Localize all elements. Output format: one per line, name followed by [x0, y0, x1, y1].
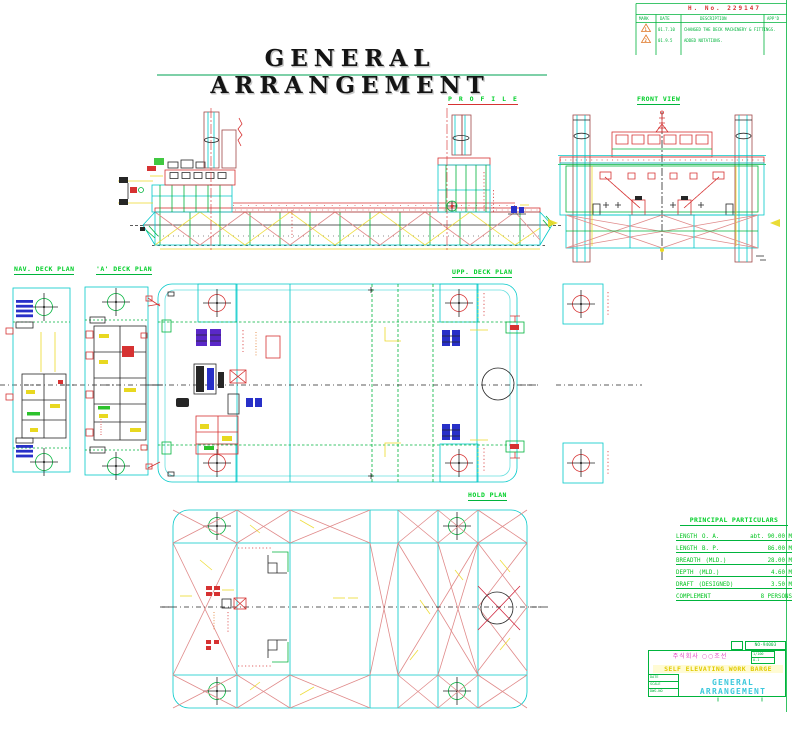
particular-value: 28.00 M — [768, 558, 792, 564]
hold-plan-label: HOLD PLAN — [468, 491, 507, 501]
particular-label: DEPTH — [676, 570, 693, 576]
rev-row-description: ADDED NOTATIONS. — [684, 38, 723, 43]
particular-qualifier: B. P. — [702, 546, 719, 552]
dwg-no-cell: DWG.NO — [648, 688, 679, 697]
rev-header-appd: APP'D — [767, 16, 779, 21]
rev-row-mark: 1 — [645, 27, 647, 32]
nav-deck-plan-label: NAV. DECK PLAN — [14, 265, 74, 275]
drawing-title: GENERAL ARRANGEMENT — [681, 678, 785, 696]
particular-value: abt. 90.00 M — [750, 534, 792, 540]
rev-row-mark: 2 — [645, 38, 647, 43]
particular-qualifier: (DESIGNED) — [698, 582, 733, 588]
particular-label: LENGTH — [676, 546, 697, 552]
nav-deck-plan — [0, 288, 80, 476]
particulars-row: COMPLEMENT 8 PERSONS — [676, 589, 792, 601]
particular-qualifier: (MLD.) — [705, 558, 726, 564]
drawing-canvas — [0, 0, 800, 729]
hold-plan — [160, 510, 548, 708]
title-block-small-cell — [731, 641, 743, 650]
particular-value: 86.00 M — [768, 546, 792, 552]
sheet-no-cell: A-1 — [751, 657, 775, 664]
rev-header-mark: MARK — [639, 16, 649, 21]
company-name: 주식회사 ○○조선 — [652, 651, 748, 660]
sheet-border — [636, 0, 787, 712]
front-view — [548, 111, 780, 262]
particular-value: 8 PERSONS — [761, 594, 792, 600]
particular-label: DRAFT — [676, 582, 693, 588]
particulars-row: LENGTH B. P. 86.00 M — [676, 541, 792, 553]
rev-row-description: CHANGED THE DECK MACHINERY & FITTINGS. — [684, 27, 776, 32]
hull-number: H. No. 229147 — [688, 5, 761, 12]
rev-row-date: 01.7.10 — [658, 27, 675, 32]
rev-row-date: 01.9.5 — [658, 38, 672, 43]
particular-qualifier: O. A. — [702, 534, 719, 540]
upp-deck-plan-label: UPP. DECK PLAN — [452, 268, 512, 278]
particular-label: COMPLEMENT — [676, 594, 711, 600]
front-view-label: FRONT VIEW — [637, 95, 680, 105]
particular-value: 4.60 M — [771, 570, 792, 576]
profile-view-label: P R O F I L E — [448, 95, 518, 105]
particulars-title: PRINCIPAL PARTICULARS — [680, 516, 788, 526]
particulars-row: BREADTH (MLD.) 28.00 M — [676, 553, 792, 565]
particulars-row: DRAFT (DESIGNED) 3.50 M — [676, 577, 792, 589]
a-deck-plan-label: 'A' DECK PLAN — [96, 265, 152, 275]
drawing-number-box: NO-94003 — [745, 641, 786, 650]
particular-label: LENGTH — [676, 534, 697, 540]
ship-name: SELF ELEVATING WORK BARGE — [653, 665, 783, 673]
profile-view — [118, 108, 562, 252]
drawing-sheet: GENERAL ARRANGEMENT H. No. 229147 MARK D… — [0, 0, 800, 729]
a-deck-plan — [80, 287, 158, 480]
particular-value: 3.50 M — [771, 582, 792, 588]
sheet-title-underline — [157, 74, 547, 76]
particulars-row: LENGTH O. A. abt. 90.00 M — [676, 529, 792, 541]
rev-header-description: DESCRIPTION — [700, 16, 727, 21]
upp-deck-plan — [145, 284, 642, 483]
sheet-title: GENERAL ARRANGEMENT — [150, 45, 550, 99]
particular-qualifier: (MLD.) — [698, 570, 719, 576]
principal-particulars: PRINCIPAL PARTICULARS LENGTH O. A. abt. … — [676, 516, 792, 601]
rev-header-date: DATE — [660, 16, 670, 21]
particulars-row: DEPTH (MLD.) 4.60 M — [676, 565, 792, 577]
particular-label: BREADTH — [676, 558, 700, 564]
